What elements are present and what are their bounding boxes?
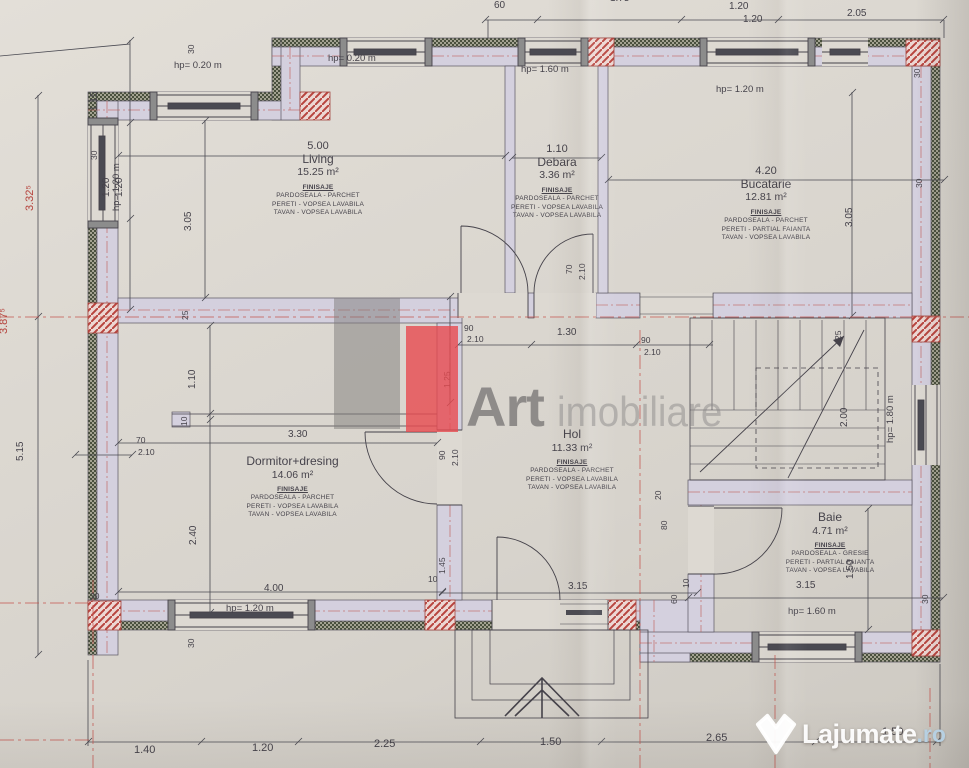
room-name: Living <box>238 153 398 167</box>
dim-label: 2.10 <box>467 334 484 344</box>
dim-label: 90 <box>437 451 447 460</box>
room-area: 11.33 m² <box>492 442 652 454</box>
floor-plan-page: 5.00 Living 15.25 m² FINISAJE PARDOSEALA… <box>0 0 969 768</box>
room-name: Hol <box>492 428 652 442</box>
dim-label: 10 <box>179 417 189 426</box>
room-width-dim: 5.00 <box>238 140 398 153</box>
dim-label: 60 <box>494 0 505 11</box>
window-height-label: hp= 1.20 m <box>226 603 274 614</box>
room-area: 4.71 m² <box>750 525 910 537</box>
room-area: 3.36 m² <box>492 169 622 181</box>
dim-label: 3.05 <box>183 212 194 231</box>
room-area: 14.06 m² <box>210 469 375 481</box>
room-finishes: FINISAJE PARDOSEALA - PARCHET PERETI - P… <box>686 209 846 243</box>
window-height-label: hp= 0.20 m <box>328 53 376 64</box>
window-height-label: hp= 0.20 m <box>174 60 222 71</box>
dim-label: 2.10 <box>138 447 155 457</box>
dim-label: 1.10 <box>187 370 198 389</box>
dim-label: 2.10 <box>644 347 661 357</box>
dim-label: 1.20 <box>729 1 748 12</box>
dim-label: 5.15 <box>15 442 26 461</box>
dim-label: 1.45 <box>437 557 447 574</box>
dim-label: 30 <box>90 591 99 601</box>
dim-label: 3.05 <box>844 208 855 227</box>
axis-dim-label: 3.87⁵ <box>0 308 10 334</box>
dim-label: 30 <box>912 69 922 78</box>
dim-label: 25 <box>833 331 843 340</box>
staircase <box>690 318 885 480</box>
dim-label: 2.40 <box>188 526 199 545</box>
room-finishes: FINISAJE PARDOSEALA - PARCHET PERETI - V… <box>238 184 398 218</box>
site-watermark-tld: .ro <box>917 721 946 748</box>
dim-label: 1.50 <box>845 560 856 579</box>
dim-label: 2.25 <box>374 738 395 750</box>
dim-label: 2.65 <box>706 732 727 744</box>
dim-label: 2.10 <box>577 263 587 280</box>
dim-label: 1.15 <box>89 92 100 111</box>
room-dormitor: Dormitor+dresing 14.06 m² FINISAJE PARDO… <box>210 455 375 520</box>
window-height-label: hp= 1.60 m <box>788 606 836 617</box>
room-name: Bucatarie <box>686 178 846 192</box>
dim-label: 1.25 <box>442 371 452 388</box>
dim-label: 1.75 <box>610 0 629 4</box>
dim-label: 25 <box>180 311 190 320</box>
dim-label: 10 <box>681 579 691 588</box>
dim-label: 20 <box>653 491 663 500</box>
room-hol: Hol 11.33 m² FINISAJE PARDOSEALA - PARCH… <box>492 428 652 493</box>
room-finishes: FINISAJE PARDOSEALA - PARCHET PERETI - V… <box>492 459 652 493</box>
dim-label: 1.50 <box>540 736 561 748</box>
room-width-dim: 1.10 <box>492 143 622 156</box>
dim-label: 2.00 <box>839 408 850 427</box>
dim-label: 4.00 <box>264 583 283 594</box>
room-finishes: FINISAJE PARDOSEALA - PARCHET PERETI - V… <box>210 486 375 520</box>
axis-dim-label: 3.32⁵ <box>24 185 36 211</box>
room-area: 15.25 m² <box>238 166 398 178</box>
dim-label: 70 <box>136 435 145 445</box>
room-debara: 1.10 Debara 3.36 m² FINISAJE PARDOSEALA … <box>492 143 622 221</box>
room-name: Baie <box>750 511 910 525</box>
room-name: Debara <box>492 156 622 170</box>
room-width-dim: 4.20 <box>686 165 846 178</box>
dim-label: 30 <box>186 45 196 54</box>
site-watermark: Lajumate .ro <box>754 712 946 756</box>
dim-label: 2.05 <box>847 8 866 19</box>
room-name: Dormitor+dresing <box>210 455 375 469</box>
room-finishes: FINISAJE PARDOSEALA - PARCHET PERETI - V… <box>492 187 622 221</box>
dim-label: 2.10 <box>450 449 460 466</box>
room-area: 12.81 m² <box>686 191 846 203</box>
dim-label: 10 <box>428 574 437 584</box>
dresing-divider <box>172 414 437 426</box>
floor-plan-drawing <box>0 0 969 768</box>
dim-label: 1.20 <box>252 742 273 754</box>
window-height-label: hp= 1.80 m <box>885 395 896 443</box>
room-bucatarie: 4.20 Bucatarie 12.81 m² FINISAJE PARDOSE… <box>686 165 846 243</box>
dim-label: 60 <box>669 595 679 604</box>
dim-label: 90 <box>641 335 650 345</box>
dim-label: 80 <box>659 521 669 530</box>
dim-label: 1.20 <box>743 14 762 25</box>
room-living: 5.00 Living 15.25 m² FINISAJE PARDOSEALA… <box>238 140 398 218</box>
site-logo-icon <box>754 712 798 756</box>
window-height-label: hp= 1.20 m <box>111 163 122 211</box>
window-height-label: hp= 1.60 m <box>521 64 569 75</box>
dim-label: 3.15 <box>796 580 815 591</box>
dim-label: 1.40 <box>134 744 155 756</box>
dim-label: 30 <box>186 639 196 648</box>
dim-label: 30 <box>920 595 930 604</box>
room-finishes: FINISAJE PARDOSEALA - GRESIE PERETI - PA… <box>750 542 910 576</box>
site-watermark-name: Lajumate <box>802 719 917 750</box>
dim-label: 70 <box>564 265 574 274</box>
room-baie: Baie 4.71 m² FINISAJE PARDOSEALA - GRESI… <box>750 511 910 576</box>
dim-label: 3.30 <box>288 429 307 440</box>
entrance-porch <box>455 630 648 718</box>
dim-label: 30 <box>914 179 924 188</box>
dim-label: 1.30 <box>557 327 576 338</box>
dim-label: 90 <box>464 323 473 333</box>
dim-label: 30 <box>89 151 99 160</box>
dim-label: 3.15 <box>568 581 587 592</box>
window-height-label: hp= 1.20 m <box>716 84 764 95</box>
